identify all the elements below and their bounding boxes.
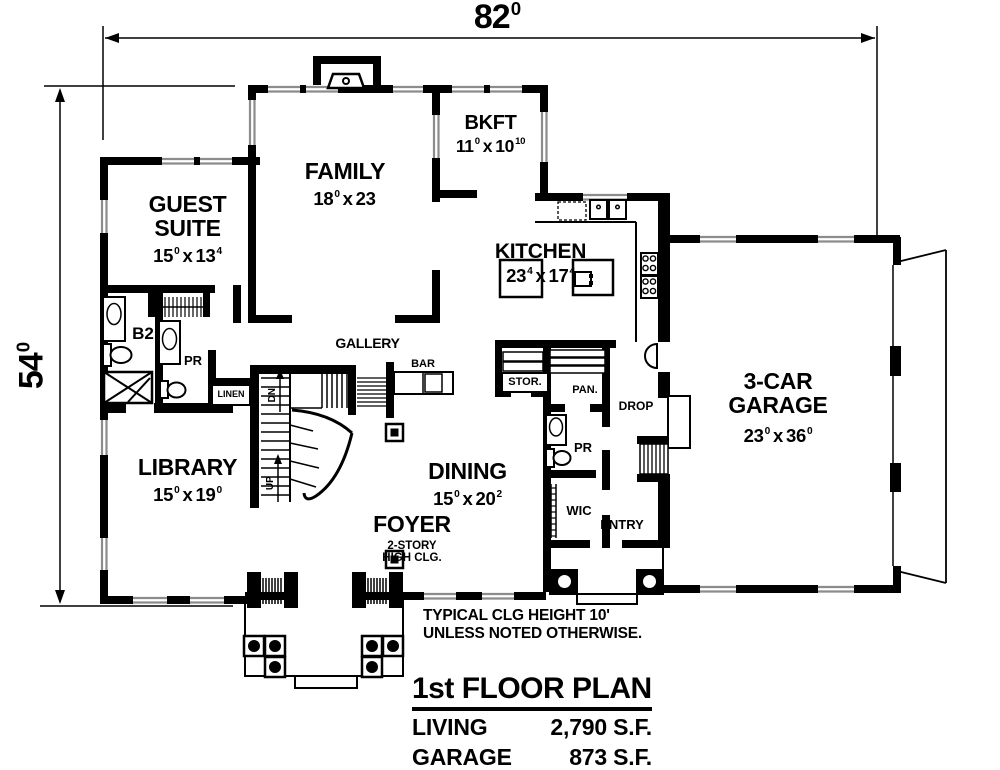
overall-width-dimension: 820 [452, 0, 542, 35]
label-wic: WIC [558, 504, 600, 518]
label-dn: DN [268, 380, 278, 410]
room-label-garage: 3-CAR GARAGE 230x360 [708, 370, 848, 445]
powder-room-fixtures [546, 415, 571, 467]
area-row-living: LIVING 2,790 S.F. [412, 714, 652, 741]
label-up: UP [266, 468, 276, 498]
fireplace [328, 74, 364, 88]
room-label-foyer: FOYER 2-STORY HIGH CLG. [352, 513, 472, 565]
garage-door-openings [893, 250, 946, 583]
label-entry: ENTRY [596, 518, 648, 532]
label-bar: BAR [403, 359, 443, 370]
plan-title: 1st FLOOR PLAN [412, 672, 652, 711]
label-pr-hall: PR [568, 441, 598, 455]
label-gallery: GALLERY [330, 336, 405, 351]
area-row-garage: GARAGE 873 S.F. [412, 744, 652, 770]
label-stor: STOR. [504, 377, 546, 388]
title-block: 1st FLOOR PLAN LIVING 2,790 S.F. GARAGE … [412, 672, 652, 770]
room-label-kitchen: KITCHEN 234x174 [478, 241, 603, 285]
label-linen: LINEN [214, 390, 248, 399]
room-label-family: FAMILY 180x23 [285, 160, 405, 208]
bath-b2-fixtures [103, 297, 152, 403]
room-label-guest-suite: GUEST SUITE 150x134 [130, 193, 245, 265]
stairs [261, 368, 386, 502]
room-label-bkft: BKFT 110x1010 [438, 113, 543, 155]
label-drop: DROP [612, 400, 660, 412]
side-porch [550, 548, 663, 604]
label-pr-guest: PR [178, 354, 208, 368]
windows [100, 85, 854, 604]
overall-height-dimension: 540 [15, 319, 57, 414]
floor-plan: 820 540 GUEST SUITE 150x134 FAMILY 180x2… [0, 0, 1000, 770]
label-pan: PAN. [565, 385, 605, 396]
bar-counter [394, 372, 453, 394]
label-b2: B2 [126, 325, 160, 343]
wic-closet-rod [551, 484, 556, 538]
foyer-sidelights [263, 578, 386, 604]
guest-pr-fixtures [159, 297, 208, 398]
front-porch [244, 600, 403, 688]
ceiling-note: TYPICAL CLG HEIGHT 10' UNLESS NOTED OTHE… [423, 607, 663, 644]
room-label-dining: DINING 150x202 [405, 460, 530, 508]
room-label-library: LIBRARY 150x190 [125, 456, 250, 504]
